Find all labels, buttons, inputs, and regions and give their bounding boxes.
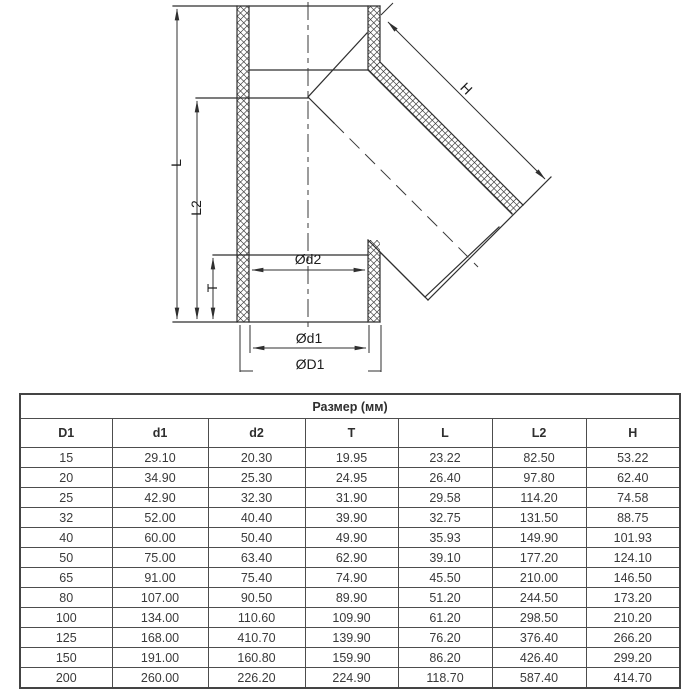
table-cell: 114.20 xyxy=(492,488,586,508)
table-cell: 40.40 xyxy=(208,508,305,528)
table-cell: 40 xyxy=(20,528,112,548)
column-header-H: H xyxy=(586,419,680,448)
table-cell: 62.90 xyxy=(305,548,398,568)
table-cell: 101.93 xyxy=(586,528,680,548)
table-cell: 90.50 xyxy=(208,588,305,608)
table-cell: 29.10 xyxy=(112,448,208,468)
table-cell: 298.50 xyxy=(492,608,586,628)
column-header-D1: D1 xyxy=(20,419,112,448)
table-cell: 150 xyxy=(20,648,112,668)
table-cell: 159.90 xyxy=(305,648,398,668)
table-cell: 15 xyxy=(20,448,112,468)
table-cell: 89.90 xyxy=(305,588,398,608)
table-row: 125168.00410.70139.9076.20376.40266.20 xyxy=(20,628,680,648)
table-cell: 32.30 xyxy=(208,488,305,508)
table-cell: 60.00 xyxy=(112,528,208,548)
table-cell: 414.70 xyxy=(586,668,680,689)
table-cell: 168.00 xyxy=(112,628,208,648)
table-cell: 74.90 xyxy=(305,568,398,588)
table-cell: 160.80 xyxy=(208,648,305,668)
table-cell: 177.20 xyxy=(492,548,586,568)
dim-label-d1: Ød1 xyxy=(296,330,323,346)
table-cell: 118.70 xyxy=(398,668,492,689)
table-title-row: Размер (мм) xyxy=(20,394,680,419)
table-cell: 25 xyxy=(20,488,112,508)
table-cell: 19.95 xyxy=(305,448,398,468)
table-cell: 173.20 xyxy=(586,588,680,608)
table-cell: 149.90 xyxy=(492,528,586,548)
table-cell: 139.90 xyxy=(305,628,398,648)
table-cell: 191.00 xyxy=(112,648,208,668)
table-cell: 260.00 xyxy=(112,668,208,689)
table-cell: 52.00 xyxy=(112,508,208,528)
technical-drawing: L L2 T H Ød2 Ød1 ØD1 xyxy=(0,0,700,392)
table-row: 5075.0063.4062.9039.10177.20124.10 xyxy=(20,548,680,568)
dim-label-D1: ØD1 xyxy=(296,356,325,372)
datasheet-page: L L2 T H Ød2 Ød1 ØD1 Размер (мм) D1d1d2T… xyxy=(0,0,700,700)
dim-label-L: L xyxy=(168,159,184,167)
table-cell: 39.10 xyxy=(398,548,492,568)
table-cell: 74.58 xyxy=(586,488,680,508)
table-cell: 23.22 xyxy=(398,448,492,468)
table-cell: 210.00 xyxy=(492,568,586,588)
table-cell: 32 xyxy=(20,508,112,528)
table-cell: 20 xyxy=(20,468,112,488)
column-header-d2: d2 xyxy=(208,419,305,448)
table-cell: 75.40 xyxy=(208,568,305,588)
table-header-row: D1d1d2TLL2H xyxy=(20,419,680,448)
center-lines xyxy=(308,2,478,332)
table-cell: 50.40 xyxy=(208,528,305,548)
table-row: 1529.1020.3019.9523.2282.5053.22 xyxy=(20,448,680,468)
table-cell: 31.90 xyxy=(305,488,398,508)
table-cell: 76.20 xyxy=(398,628,492,648)
fitting-outline xyxy=(173,6,551,322)
table-cell: 45.50 xyxy=(398,568,492,588)
table-title: Размер (мм) xyxy=(20,394,680,419)
table-cell: 34.90 xyxy=(112,468,208,488)
table-cell: 63.40 xyxy=(208,548,305,568)
table-cell: 107.00 xyxy=(112,588,208,608)
table-cell: 210.20 xyxy=(586,608,680,628)
table-cell: 61.20 xyxy=(398,608,492,628)
column-header-L: L xyxy=(398,419,492,448)
table-row: 200260.00226.20224.90118.70587.40414.70 xyxy=(20,668,680,689)
table-cell: 65 xyxy=(20,568,112,588)
table-row: 80107.0090.5089.9051.20244.50173.20 xyxy=(20,588,680,608)
table-cell: 299.20 xyxy=(586,648,680,668)
table-cell: 86.20 xyxy=(398,648,492,668)
table-cell: 24.95 xyxy=(305,468,398,488)
table-cell: 97.80 xyxy=(492,468,586,488)
dim-label-d2: Ød2 xyxy=(295,251,322,267)
table-row: 150191.00160.80159.9086.20426.40299.20 xyxy=(20,648,680,668)
table-cell: 410.70 xyxy=(208,628,305,648)
table-cell: 51.20 xyxy=(398,588,492,608)
table-row: 2034.9025.3024.9526.4097.8062.40 xyxy=(20,468,680,488)
table-cell: 88.75 xyxy=(586,508,680,528)
dim-label-T: T xyxy=(204,283,220,292)
table-cell: 29.58 xyxy=(398,488,492,508)
table-cell: 109.90 xyxy=(305,608,398,628)
dim-label-H: H xyxy=(457,79,475,97)
table-cell: 25.30 xyxy=(208,468,305,488)
dim-label-L2: L2 xyxy=(188,200,204,216)
table-row: 6591.0075.4074.9045.50210.00146.50 xyxy=(20,568,680,588)
table-cell: 49.90 xyxy=(305,528,398,548)
table-cell: 100 xyxy=(20,608,112,628)
table-cell: 42.90 xyxy=(112,488,208,508)
table-cell: 91.00 xyxy=(112,568,208,588)
table-cell: 82.50 xyxy=(492,448,586,468)
table-cell: 124.10 xyxy=(586,548,680,568)
table-row: 4060.0050.4049.9035.93149.90101.93 xyxy=(20,528,680,548)
table-cell: 587.40 xyxy=(492,668,586,689)
table-cell: 20.30 xyxy=(208,448,305,468)
table-cell: 53.22 xyxy=(586,448,680,468)
table-cell: 125 xyxy=(20,628,112,648)
table-cell: 62.40 xyxy=(586,468,680,488)
table-cell: 39.90 xyxy=(305,508,398,528)
table-cell: 131.50 xyxy=(492,508,586,528)
table-row: 3252.0040.4039.9032.75131.5088.75 xyxy=(20,508,680,528)
table-cell: 200 xyxy=(20,668,112,689)
table-cell: 226.20 xyxy=(208,668,305,689)
table-cell: 32.75 xyxy=(398,508,492,528)
table-cell: 224.90 xyxy=(305,668,398,689)
table-cell: 35.93 xyxy=(398,528,492,548)
column-header-L2: L2 xyxy=(492,419,586,448)
table-body: 1529.1020.3019.9523.2282.5053.222034.902… xyxy=(20,448,680,689)
table-cell: 266.20 xyxy=(586,628,680,648)
table-cell: 426.40 xyxy=(492,648,586,668)
column-header-d1: d1 xyxy=(112,419,208,448)
column-header-T: T xyxy=(305,419,398,448)
table-row: 100134.00110.60109.9061.20298.50210.20 xyxy=(20,608,680,628)
table-cell: 134.00 xyxy=(112,608,208,628)
table-cell: 244.50 xyxy=(492,588,586,608)
size-table: Размер (мм) D1d1d2TLL2H 1529.1020.3019.9… xyxy=(19,393,681,689)
table-cell: 75.00 xyxy=(112,548,208,568)
table-cell: 146.50 xyxy=(586,568,680,588)
table-cell: 376.40 xyxy=(492,628,586,648)
table-cell: 26.40 xyxy=(398,468,492,488)
table-cell: 50 xyxy=(20,548,112,568)
table-cell: 80 xyxy=(20,588,112,608)
table-cell: 110.60 xyxy=(208,608,305,628)
table-row: 2542.9032.3031.9029.58114.2074.58 xyxy=(20,488,680,508)
